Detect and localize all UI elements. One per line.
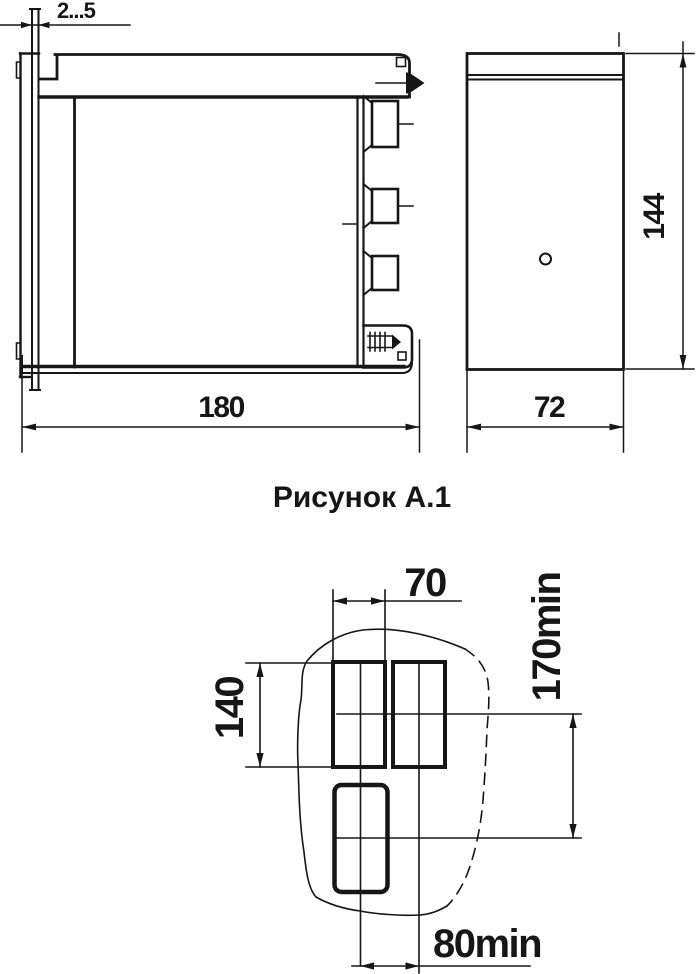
dim-arrow-left (22, 424, 36, 431)
panel-blob-outline (298, 629, 465, 915)
dimension-panel-thickness: 2...5 (0, 0, 130, 28)
dimension-depth-180: 180 (22, 340, 420, 452)
dim-arrow-bottom (256, 753, 263, 767)
dimension-row-spacing-170min: 170min (525, 573, 577, 838)
dim-label-depth: 180 (198, 391, 244, 424)
figure-caption: Рисунок А.1 (273, 481, 451, 514)
stud-body (372, 256, 398, 290)
dim-label-cutout-height: 140 (208, 677, 252, 739)
dimension-cutout-width-70: 70 (333, 561, 461, 662)
front-flange (17, 54, 40, 378)
dim-arrow-left (361, 962, 375, 969)
dim-arrow-right (39, 22, 50, 28)
dim-arrow-right (406, 962, 420, 969)
stud-body (372, 189, 398, 223)
case-body (39, 97, 407, 367)
side-view: 2...5 (0, 0, 425, 452)
dimension-width-72: 72 (467, 370, 624, 453)
dim-label-panel-thickness: 2...5 (57, 0, 96, 23)
rail-outline (39, 55, 410, 98)
panel-blob-outline-dashed (447, 649, 489, 906)
terminal-stud-1 (364, 96, 414, 152)
terminal-stud-3 (364, 251, 399, 295)
dimension-column-spacing-80min: 80min (352, 922, 541, 970)
case-hole (540, 254, 551, 265)
technical-drawing-page: 2...5 (0, 0, 699, 974)
mounting-panel-plate (30, 9, 40, 390)
rear-view: 72 144 (467, 33, 694, 452)
bottom-rail (22, 356, 412, 373)
terminal-stud-2 (343, 184, 413, 228)
dim-label-row-spacing: 170min (525, 573, 569, 702)
rail-corner-notch (397, 58, 406, 67)
dim-label-cutout-width: 70 (404, 561, 446, 605)
dim-arrow-bottom (680, 355, 687, 369)
clamp-corner-notch (398, 352, 406, 360)
dim-label-column-spacing: 80min (433, 922, 541, 966)
dim-arrow-right (610, 424, 624, 431)
figure-a1-drawing: 2...5 (0, 0, 699, 974)
dim-arrow-right (371, 597, 385, 604)
dim-label-width: 72 (534, 391, 565, 424)
mounting-screw-tip (406, 73, 425, 94)
dim-arrow-top (569, 714, 576, 728)
rear-clamp-block (364, 326, 413, 368)
body-outline (467, 54, 624, 370)
dimension-height-144: 144 (626, 42, 694, 369)
dimension-cutout-height-140: 140 (208, 663, 336, 767)
panel-cutout-view: 70 140 170min 80min (208, 561, 581, 973)
top-rail (39, 55, 425, 98)
dim-arrow-top (256, 663, 263, 677)
stud-body (372, 101, 398, 147)
dim-arrow-left (333, 597, 347, 604)
dim-label-height: 144 (638, 192, 671, 239)
dim-arrow-left (467, 424, 481, 431)
dim-arrow-left (21, 22, 32, 28)
dim-arrow-bottom (569, 824, 576, 838)
dim-arrow-right (406, 424, 420, 431)
dim-arrow-top (680, 54, 687, 68)
clamp-bolt-tip (392, 335, 401, 350)
